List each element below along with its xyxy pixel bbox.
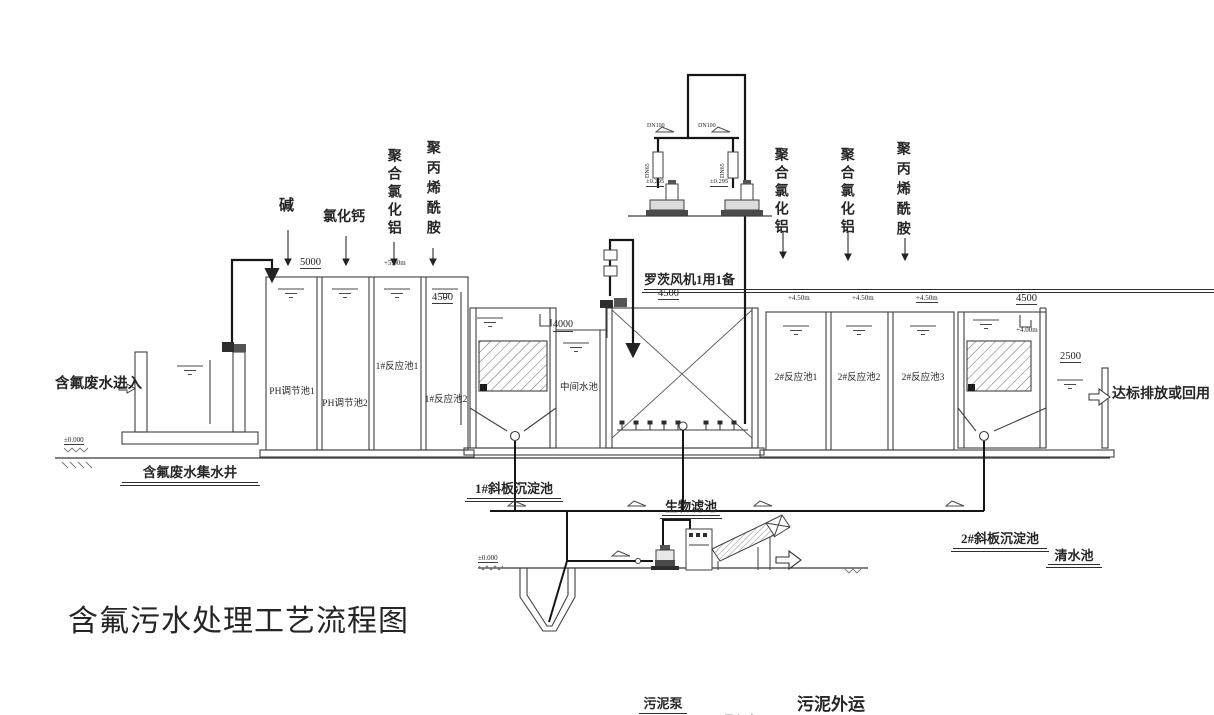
pipe-dn100-a-label: DN100 [647, 123, 665, 129]
dim-4000: 4000 [553, 320, 573, 332]
reaction-block-2 [760, 312, 1114, 457]
pipe-dn65-b-label: DN65 [720, 163, 726, 178]
chemical-pam2-label: 聚丙烯酰胺 [894, 141, 909, 241]
sludge-pit [520, 568, 575, 631]
pipe-dn65-a-label: DN65 [645, 163, 651, 178]
chemical-alkali-label: 碱 [279, 199, 294, 215]
biofilter [606, 308, 758, 448]
elevation-blower-a: ±0.295 [646, 179, 664, 187]
chemical-pam1-label: 聚丙烯酰胺 [424, 140, 439, 240]
collection-well-label: 含氟废水集水井 [122, 466, 258, 483]
tank-ph1-label: PH调节池1 [267, 388, 317, 398]
tank-ph2-label: PH调节池2 [320, 400, 370, 410]
blower-label: 罗茨风机1用1备 [644, 273, 1214, 290]
sludge-pump-glyph [651, 545, 679, 570]
tank-rx2a-label: 2#反应池1 [769, 374, 823, 384]
mid-tank-label: 中间水池 [557, 384, 601, 394]
sludge-out-arrow [776, 551, 801, 569]
dim-4500-sed1: 4500 [432, 292, 453, 304]
sed2-label: 2#斜板沉淀池 [953, 532, 1047, 549]
sed1-label: 1#斜板沉淀池 [467, 482, 561, 499]
biofilter-label: 生物滤池 [662, 500, 720, 517]
screw-press-glyph [686, 515, 790, 570]
dim-2500: 2500 [1060, 351, 1081, 363]
tank-rx1b-label: 1#反应池2 [422, 396, 470, 406]
outlet-arrow [1089, 389, 1110, 405]
tank-rx1a-label: 1#反应池1 [372, 363, 422, 373]
dim-5000: 5000 [300, 257, 321, 269]
chemical-pac3-label: 聚合氯化铝 [838, 147, 853, 237]
diagram-title: 含氟污水处理工艺流程图 [68, 606, 409, 638]
sludge-pump-label: 污泥泵 [639, 697, 687, 714]
elevation-sludge-area: ±0.000 [478, 555, 498, 563]
well-pump-glyph [222, 342, 246, 352]
outlet-flow-label: 达标排放或回用 [1112, 388, 1210, 403]
clear-tank-label: 清水池 [1048, 549, 1100, 566]
dim-4500-sed2: 4500 [1016, 293, 1037, 305]
chemical-pac1-label: 聚合氯化铝 [385, 148, 400, 238]
chemical-pac2-label: 聚合氯化铝 [772, 147, 787, 237]
tank-rx2c-label: 2#反应池3 [896, 374, 950, 384]
dosing-arrows [288, 230, 905, 265]
sludge-out-label: 污泥外运 [797, 696, 1214, 715]
elevation-blower-b: ±0.295 [710, 179, 728, 187]
elevation-450-b: +4.50m [852, 295, 874, 302]
elevation-400: +4.00m [1016, 327, 1038, 334]
elevation-450-a: +4.50m [788, 295, 810, 302]
tank-rx2b-label: 2#反应池2 [832, 374, 886, 384]
process-flow-diagram: 含氟废水进入 含氟废水集水井 ±0.000 碱 氯化钙 聚合氯化铝 聚丙烯酰胺 … [0, 0, 1214, 715]
elevation-ground-left: ±0.000 [64, 437, 84, 445]
clear-water-tank [1057, 368, 1108, 448]
chemical-cacl2-label: 氯化钙 [323, 211, 365, 226]
pipe-dn100-b-label: DN100 [698, 123, 716, 129]
mid-pump-glyph [600, 250, 627, 338]
elevation-450-c: +4.50m [916, 295, 938, 303]
sedimentation-tank-1 [470, 308, 556, 448]
elevation-500: +5.00m [384, 260, 406, 267]
inlet-flow-label: 含氟废水进入 [55, 377, 142, 392]
pipe-coupling [635, 558, 640, 563]
collection-well [122, 352, 258, 444]
sludge-pipes [490, 430, 984, 622]
